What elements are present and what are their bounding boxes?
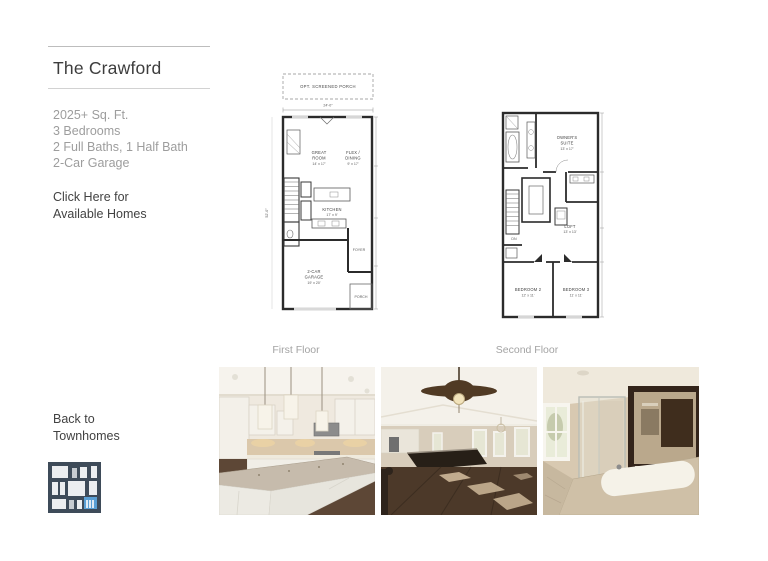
- back-link-line1: Back to: [53, 411, 120, 428]
- stairs-dn-label: DN: [511, 237, 517, 241]
- svg-text:BEDROOM 2: BEDROOM 2: [515, 287, 542, 292]
- svg-text:OWNER'S: OWNER'S: [557, 135, 578, 140]
- svg-text:GREAT: GREAT: [312, 150, 327, 155]
- spec-baths: 2 Full Baths, 1 Half Bath: [53, 139, 188, 155]
- great-room-label: GREAT ROOM 14' x 17': [312, 150, 327, 166]
- depth-dimension: 52'-0": [265, 208, 269, 218]
- svg-text:GARAGE: GARAGE: [305, 275, 324, 280]
- sitemap-block: [80, 467, 87, 478]
- foyer-label: FOYER: [353, 248, 366, 252]
- svg-text:9' x 17': 9' x 17': [347, 162, 358, 166]
- svg-text:BEDROOM 3: BEDROOM 3: [563, 287, 590, 292]
- sitemap-block: [68, 481, 85, 496]
- flex-dining-label: FLEX / DINING 9' x 17': [345, 150, 361, 166]
- living-room-photo-image: [381, 367, 537, 515]
- available-homes-link-line2: Available Homes: [53, 206, 147, 223]
- svg-text:13' x 13': 13' x 13': [563, 230, 576, 234]
- spec-garage: 2-Car Garage: [53, 155, 188, 171]
- sitemap-block: [60, 482, 65, 495]
- second-floor-plan: OWNER'S SUITE 13' x 17' DN LOFT: [498, 110, 628, 325]
- kitchen-photo-image: [219, 367, 375, 515]
- sitemap-highlighted-unit: [84, 497, 97, 509]
- second-floor-caption: Second Floor: [477, 344, 577, 356]
- back-to-townhomes-link[interactable]: Back to Townhomes: [53, 411, 120, 445]
- back-link-line2: Townhomes: [53, 428, 120, 445]
- page: The Crawford 2025+ Sq. Ft. 3 Bedrooms 2 …: [0, 0, 768, 561]
- page-title: The Crawford: [53, 58, 161, 79]
- sitemap-block: [52, 482, 58, 495]
- svg-text:11' x 11': 11' x 11': [570, 294, 583, 298]
- title-divider-top: [48, 46, 210, 47]
- bathroom-photo[interactable]: [543, 367, 699, 515]
- svg-text:17' x 9': 17' x 9': [326, 213, 337, 217]
- available-homes-link-line1: Click Here for: [53, 189, 147, 206]
- svg-text:KITCHEN: KITCHEN: [322, 207, 341, 212]
- sitemap-block: [77, 500, 82, 509]
- svg-text:FLEX /: FLEX /: [346, 150, 360, 155]
- living-room-photo[interactable]: [381, 367, 537, 515]
- first-floor-caption: First Floor: [246, 344, 346, 356]
- svg-text:12' x 11': 12' x 11': [522, 294, 535, 298]
- svg-text:19' x 20': 19' x 20': [307, 281, 320, 285]
- svg-text:13' x 17': 13' x 17': [560, 147, 573, 151]
- sitemap-block: [91, 466, 97, 478]
- porch-label: OPT. SCREENED PORCH: [300, 84, 356, 89]
- sitemap-block: [52, 466, 68, 478]
- spec-list: 2025+ Sq. Ft. 3 Bedrooms 2 Full Baths, 1…: [53, 107, 188, 171]
- svg-text:DINING: DINING: [345, 156, 361, 161]
- spec-sqft: 2025+ Sq. Ft.: [53, 107, 188, 123]
- sitemap-block: [72, 468, 77, 478]
- spec-bedrooms: 3 Bedrooms: [53, 123, 188, 139]
- sitemap-icon[interactable]: [48, 462, 101, 513]
- porch-small-label: PORCH: [355, 295, 368, 299]
- svg-text:SUITE: SUITE: [560, 141, 573, 146]
- width-dimension: 24'-0": [323, 104, 333, 108]
- sitemap-block: [52, 499, 66, 509]
- sitemap-block: [69, 500, 74, 509]
- title-divider-bottom: [48, 88, 210, 89]
- svg-text:ROOM: ROOM: [312, 156, 326, 161]
- svg-text:14' x 17': 14' x 17': [312, 162, 325, 166]
- kitchen-photo[interactable]: [219, 367, 375, 515]
- bathroom-photo-image: [543, 367, 699, 515]
- svg-text:LOFT: LOFT: [564, 224, 576, 229]
- first-floor-plan: OPT. SCREENED PORCH 24'-0" 52'-0" GREAT …: [256, 70, 386, 332]
- available-homes-link[interactable]: Click Here for Available Homes: [53, 189, 147, 223]
- svg-text:2-CAR: 2-CAR: [307, 269, 320, 274]
- sitemap-block: [89, 481, 97, 495]
